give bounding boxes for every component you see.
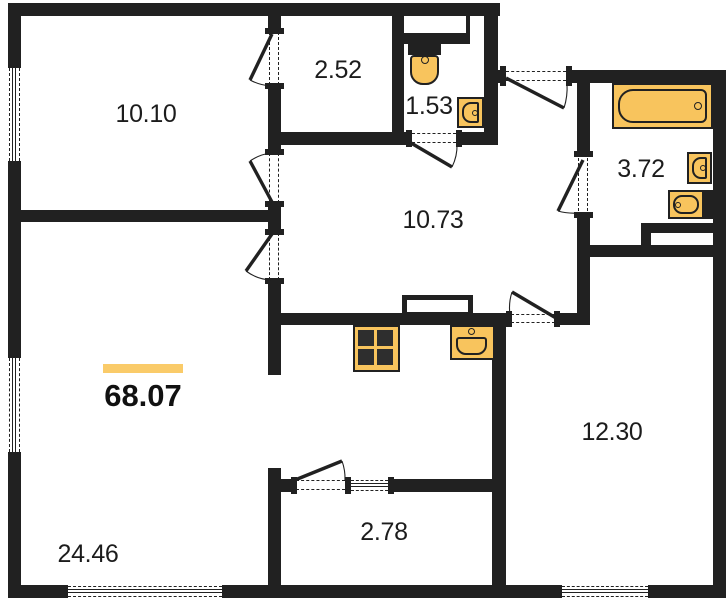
door-leaf bbox=[246, 234, 272, 271]
door-arc bbox=[250, 80, 271, 86]
door-leaf bbox=[506, 78, 564, 108]
room-area-wardrobe: 2.52 bbox=[278, 57, 398, 85]
door-arc bbox=[558, 211, 578, 213]
door-leaf bbox=[512, 292, 556, 318]
door-leaf bbox=[295, 461, 342, 480]
total-area-highlight-bar bbox=[103, 364, 183, 373]
door-swings bbox=[0, 0, 728, 600]
room-area-balcony: 2.78 bbox=[324, 519, 444, 547]
room-area-hallway: 10.73 bbox=[373, 207, 493, 235]
door-arc bbox=[452, 144, 457, 167]
room-area-bathroom: 3.72 bbox=[581, 156, 701, 184]
door-leaf bbox=[250, 161, 272, 202]
door-leaf bbox=[558, 160, 583, 211]
floor-plan: 10.10 2.52 1.53 10.73 3.72 12.30 24.46 2… bbox=[0, 0, 728, 600]
room-area-bedroom: 10.10 bbox=[86, 101, 206, 129]
door-arc bbox=[250, 153, 271, 161]
room-area-living-kitchen: 24.46 bbox=[28, 541, 148, 569]
door-arc bbox=[509, 292, 512, 315]
room-area-bedroom-2: 12.30 bbox=[552, 419, 672, 447]
door-arc bbox=[246, 271, 271, 280]
door-arc bbox=[564, 84, 567, 108]
room-area-wc: 1.53 bbox=[369, 93, 489, 121]
door-arc bbox=[342, 461, 345, 480]
total-area-value: 68.07 bbox=[83, 378, 203, 414]
door-leaf bbox=[250, 34, 272, 80]
door-leaf bbox=[411, 143, 452, 167]
